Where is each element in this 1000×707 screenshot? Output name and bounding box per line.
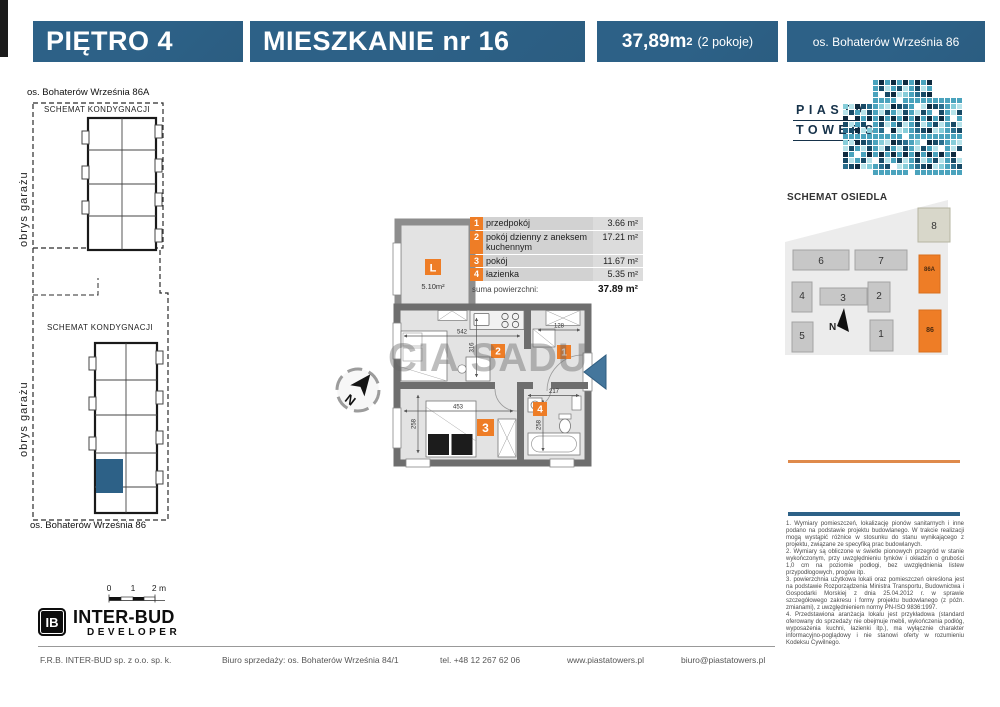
building-86a [919, 255, 940, 293]
disclaimer-paragraph: 4. Przedstawiona aranżacja lokalu jest p… [786, 612, 964, 647]
building-86a-footprint [82, 118, 162, 250]
balcony-area-label: 5.10m² [421, 282, 445, 291]
scale-bar: 0 1 2 m [95, 582, 180, 607]
bottom-window-right [550, 459, 574, 467]
rooms-note: (2 pokoje) [697, 35, 753, 49]
dim-hall-width: 128 [554, 324, 565, 330]
site-map: 8 6 7 4 3 2 5 1 86A 86 N [783, 196, 988, 366]
bathroom-sink [572, 396, 581, 410]
table-row: 1 przedpokój 3.66 m² [470, 217, 643, 230]
toilet [560, 419, 571, 433]
inter-bud-logo: IB INTER-BUD DEVELOPER [38, 608, 180, 638]
garage-outline-step [33, 278, 98, 295]
room-area: 11.67 m² [593, 255, 643, 268]
footer-company: F.R.B. INTER-BUD sp. z o.o. sp. k. [40, 655, 171, 665]
bottom-window-left [406, 459, 430, 467]
balcony-window [393, 243, 401, 295]
inter-bud-monogram-icon: IB [38, 608, 66, 636]
table-row: 4 łazienka 5.35 m² [470, 268, 643, 281]
svg-text:5: 5 [799, 331, 805, 342]
footer-website: www.piastatowers.pl [567, 655, 644, 665]
brochure-page: PIĘTRO 4 MIESZKANIE nr 16 37,89m 2 (2 po… [0, 0, 1000, 707]
floor-label: PIĘTRO 4 [46, 26, 173, 57]
floor-schematics-drawing [25, 85, 175, 545]
svg-text:86: 86 [926, 327, 934, 334]
balcony-badge-label: L [430, 263, 437, 275]
room-name: pokój dzienny z aneksem kuchennym [483, 231, 593, 254]
unit-location-highlight [96, 459, 123, 493]
room-number: 1 [470, 217, 483, 230]
apartment-header: MIESZKANIE nr 16 [250, 21, 585, 62]
table-row: 2 pokój dzienny z aneksem kuchennym 17.2… [470, 231, 643, 254]
floor-header: PIĘTRO 4 [33, 21, 243, 62]
badge-room: 3 [482, 421, 489, 435]
orange-divider [788, 460, 960, 463]
area-value: 37,89m [622, 31, 686, 53]
svg-text:1: 1 [878, 329, 884, 340]
page-corner-mark [0, 0, 8, 57]
room-number: 2 [470, 231, 483, 254]
kitchen-annex [470, 311, 524, 330]
footer-phone: tel. +48 12 267 62 06 [440, 655, 520, 665]
address-header: os. Bohaterów Września 86 [787, 21, 985, 62]
room-name: łazienka [483, 268, 593, 281]
svg-text:2 m: 2 m [152, 583, 166, 593]
svg-text:1: 1 [131, 583, 136, 593]
disclaimer-paragraph: 2. Wymiary są obliczone w świetle pionow… [786, 549, 964, 577]
footer-sales-office: Biuro sprzedaży: os. Bohaterów Września … [222, 655, 399, 665]
address-label: os. Bohaterów Września 86 [813, 35, 960, 49]
watermark-text: CIA SADU [388, 336, 588, 381]
developer-subtitle: DEVELOPER [87, 627, 180, 638]
svg-text:2: 2 [876, 291, 882, 302]
developer-name: INTER-BUD [73, 608, 180, 627]
tower-mosaic-logo-icon [843, 80, 965, 180]
total-label: suma powierzchni: [470, 285, 598, 294]
dim-bath-width: 217 [549, 389, 560, 395]
blue-divider [788, 512, 960, 516]
dim-room-height: 258 [412, 418, 418, 429]
total-area: 37.89 m² [598, 284, 643, 295]
room-area-table: 1 przedpokój 3.66 m² 2 pokój dzienny z a… [470, 217, 643, 295]
disclaimer-paragraph: 1. Wymiary pomieszczeń, lokalizację pion… [786, 521, 964, 549]
room-name: pokój [483, 255, 593, 268]
svg-text:N: N [829, 322, 836, 333]
svg-text:8: 8 [931, 221, 937, 232]
room-number: 4 [470, 268, 483, 281]
footer-email: biuro@piastatowers.pl [681, 655, 765, 665]
legal-disclaimer: 1. Wymiary pomieszczeń, lokalizację pion… [786, 521, 964, 647]
svg-text:0: 0 [107, 583, 112, 593]
apartment-label: MIESZKANIE nr 16 [263, 26, 510, 57]
disclaimer-paragraph: 3. powierzchnia użytkowa lokali oraz pom… [786, 577, 964, 612]
room-number: 3 [470, 255, 483, 268]
room-area: 3.66 m² [593, 217, 643, 230]
svg-text:86A: 86A [924, 267, 936, 273]
svg-text:6: 6 [818, 256, 824, 267]
svg-text:3: 3 [840, 293, 846, 304]
room-area: 5.35 m² [593, 268, 643, 281]
svg-text:7: 7 [878, 256, 884, 267]
table-total-row: suma powierzchni: 37.89 m² [470, 284, 643, 295]
dim-bath-height: 258 [537, 419, 543, 430]
dim-room-width: 453 [453, 405, 464, 411]
badge-bath: 4 [537, 405, 543, 416]
svg-text:4: 4 [799, 291, 805, 302]
footer-divider [38, 646, 775, 647]
table-row: 3 pokój 11.67 m² [470, 255, 643, 268]
area-header: 37,89m 2 (2 pokoje) [597, 21, 778, 62]
bedroom-window [393, 408, 401, 448]
room-name: przedpokój [483, 217, 593, 230]
dim-living-width: 542 [457, 330, 468, 336]
area-superscript: 2 [686, 36, 692, 48]
room-area: 17.21 m² [593, 231, 643, 254]
compass-ring [337, 369, 379, 411]
